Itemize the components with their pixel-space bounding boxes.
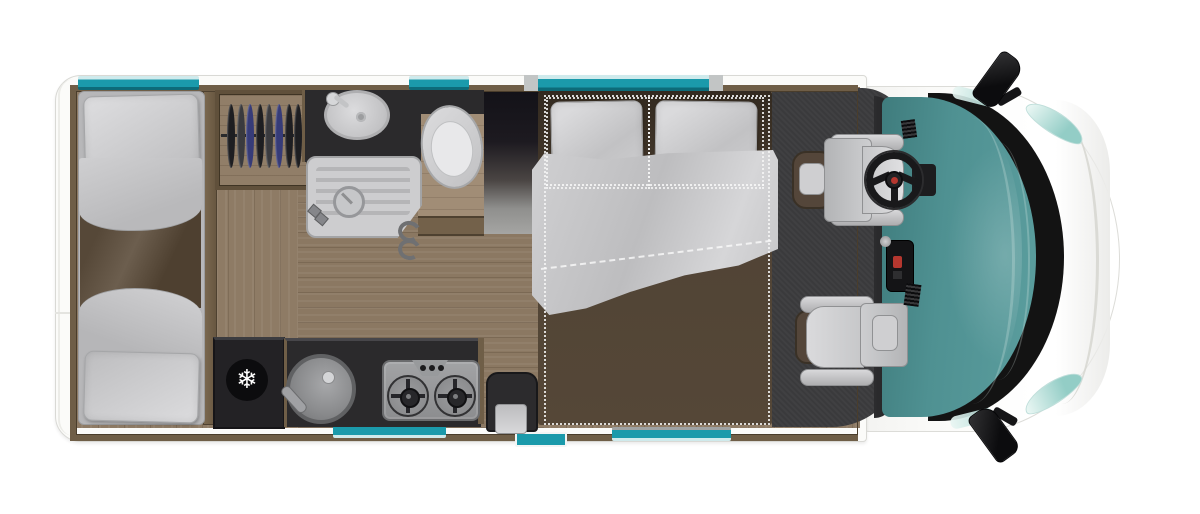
hanger-icon <box>246 104 254 168</box>
gear-knob <box>880 236 891 247</box>
steering-hub-badge <box>891 177 898 184</box>
burner-hub-dot <box>453 394 458 399</box>
dash-vent-icon-2 <box>901 119 917 139</box>
passenger-seat-headrest <box>872 315 898 351</box>
burner-hub-dot <box>406 394 411 399</box>
hanger-icon <box>227 104 235 168</box>
console-red-button <box>893 256 902 268</box>
stove-knob-dot-2 <box>429 365 435 371</box>
hanger-icon <box>275 104 283 168</box>
hanger-icon <box>256 104 264 168</box>
twin-bed-pillow-bottom <box>83 351 200 424</box>
wardrobe <box>215 90 311 190</box>
steering-wheel <box>866 152 922 208</box>
bathroom-sink-drain <box>356 112 366 122</box>
window-end-cap <box>709 75 723 91</box>
dash-vent-icon <box>904 283 922 307</box>
hanger-icon <box>294 104 302 168</box>
pillow-dotted-outline-right <box>648 97 764 189</box>
corridor-cabinet <box>484 92 540 234</box>
entry-step-tread <box>495 404 527 434</box>
hanger-icon <box>237 104 245 168</box>
stove-burner-left <box>387 375 429 417</box>
stove-knob-dot-3 <box>438 365 444 371</box>
bathroom-divider-wall <box>418 216 484 236</box>
twin-bed-duvet-top <box>79 158 202 231</box>
kitchen-sink-drain <box>322 371 335 384</box>
bed-seam-dotted-line <box>546 184 764 186</box>
entry-door-window <box>515 432 567 447</box>
motorhome-floorplan: ❄ <box>0 0 1200 514</box>
pillow-dotted-outline-left <box>546 97 650 189</box>
passenger-seat-cushion <box>806 306 864 368</box>
hanger-icon <box>285 104 293 168</box>
window-top <box>78 76 199 90</box>
passenger-seat-armrest-bottom <box>800 369 874 386</box>
kitchen-sink <box>286 354 356 424</box>
stove-knob-dot <box>420 365 426 371</box>
window-top <box>524 75 723 91</box>
console-slot <box>893 271 902 279</box>
twin-bed-duvet-bottom <box>79 288 202 359</box>
fridge-snowflake-icon: ❄ <box>226 359 268 401</box>
driver-seat-headrest <box>799 163 825 195</box>
window-end-cap <box>524 75 538 91</box>
hanger-icon <box>265 104 273 168</box>
stove-burner-right <box>434 375 476 417</box>
window-bottom <box>612 427 731 441</box>
window-top <box>409 76 469 90</box>
